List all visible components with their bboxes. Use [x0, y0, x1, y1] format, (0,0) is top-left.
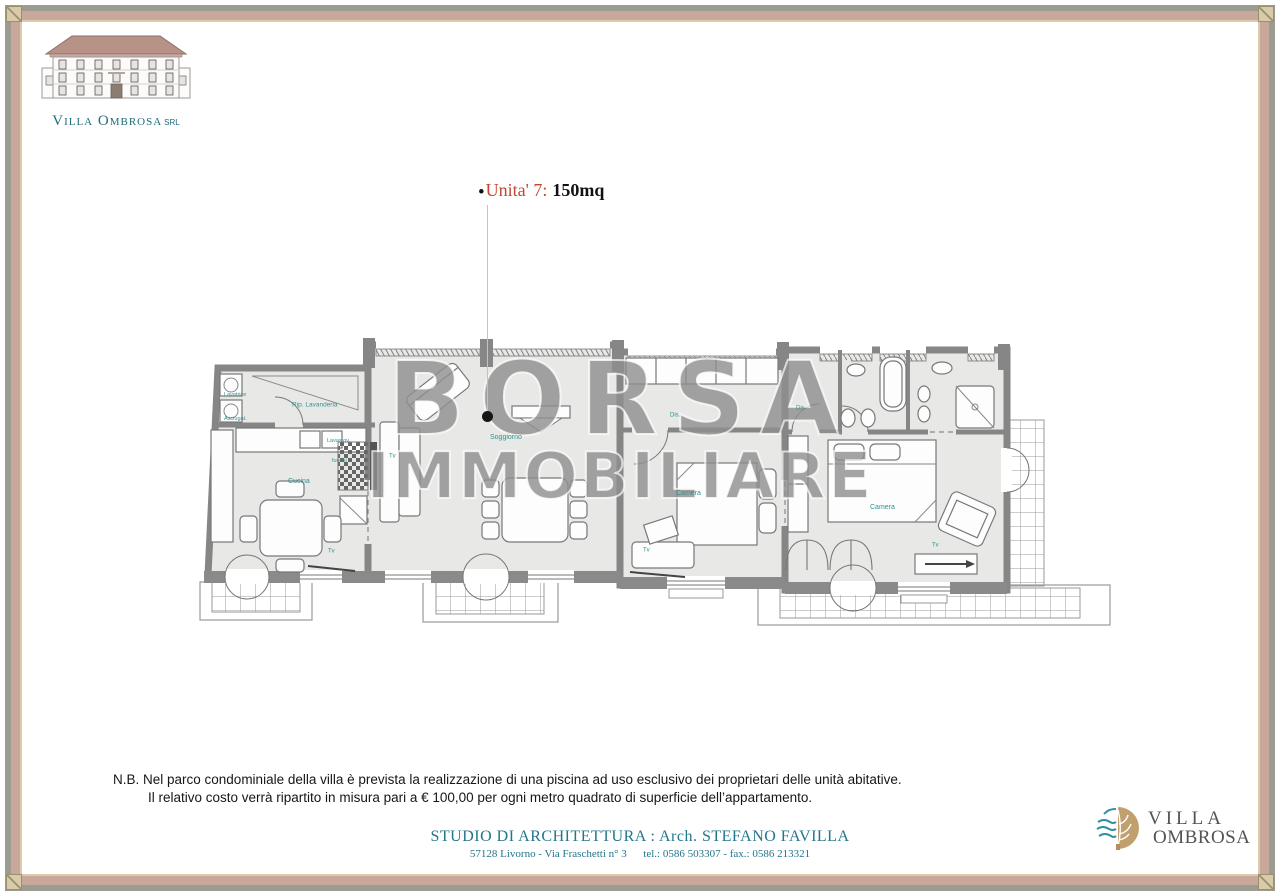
unit-label: Unita' 7: — [486, 180, 548, 200]
room-label-asciugat: Asciugat. — [224, 416, 247, 422]
floorplan-document-page: { "header_logo": { "name": "Villa Ombros… — [0, 0, 1280, 896]
room-label-lavatrice: Lavatrice — [224, 392, 246, 398]
room-label-tv-cucina: Tv — [328, 548, 335, 554]
frame-corner-ornament — [6, 6, 22, 22]
villa-building-illustration — [40, 28, 192, 106]
room-label-dis-1: Dis. — [670, 412, 680, 418]
room-label-camera-2: Camera — [870, 504, 895, 511]
studio-credit: STUDIO DI ARCHITETTURA : Arch. STEFANO F… — [0, 828, 1280, 860]
watermark-line1: BORSA — [330, 352, 910, 449]
header-logo-suffix: SRL — [164, 118, 180, 127]
room-label-lavastov: Lavastov. — [327, 438, 350, 444]
room-label-rip-lavanderia: Rip. Lavanderia — [292, 402, 338, 409]
title-bullet: • — [478, 182, 485, 203]
room-label-fuochi: fuochi — [332, 458, 347, 464]
studio-title: STUDIO DI ARCHITETTURA : Arch. STEFANO F… — [0, 828, 1280, 846]
watermark-line2: IMMOBILIARE — [330, 445, 910, 509]
note-line1: N.B. Nel parco condominiale della villa … — [113, 771, 902, 789]
footer-logo: VILLA OMBROSA — [1094, 804, 1250, 852]
header-logo-name: Villa Ombrosa — [52, 113, 162, 130]
leader-dot — [482, 411, 493, 422]
frame-corner-ornament — [6, 874, 22, 890]
room-label-tv-camera2: Tv — [932, 542, 939, 548]
leader-line — [487, 205, 488, 413]
unit-title: •Unita' 7:150mq — [478, 180, 604, 204]
footer-logo-text: VILLA OMBROSA — [1148, 809, 1250, 848]
frame-corner-ornament — [1258, 874, 1274, 890]
footer-logo-line2: OMBROSA — [1153, 828, 1250, 847]
villa-ombrosa-emblem-icon — [1094, 804, 1142, 852]
studio-address: 57128 Livorno - Via Fraschetti n° 3 tel.… — [0, 848, 1280, 860]
condominium-note: N.B. Nel parco condominiale della villa … — [113, 771, 902, 807]
note-line2: Il relativo costo verrà ripartito in mis… — [148, 789, 902, 807]
room-label-soggiorno: Soggiorno — [490, 434, 522, 441]
floorplan: BORSA IMMOBILIARE LavatriceAsciugat.Rip.… — [180, 330, 1140, 630]
room-label-camera-1: Camera — [676, 490, 701, 497]
room-label-dis-2: Dis. — [796, 405, 806, 411]
room-label-cucina: Cucina — [288, 478, 310, 485]
room-label-tv-camera1: Tv — [643, 547, 650, 553]
watermark: BORSA IMMOBILIARE — [330, 352, 910, 509]
room-label-tv-soggiorno: Tv — [389, 453, 396, 459]
footer-logo-line1: VILLA — [1148, 809, 1250, 828]
frame-corner-ornament — [1258, 6, 1274, 22]
header-logo: Villa OmbrosaSRL — [40, 28, 192, 130]
unit-area: 150mq — [552, 180, 604, 200]
